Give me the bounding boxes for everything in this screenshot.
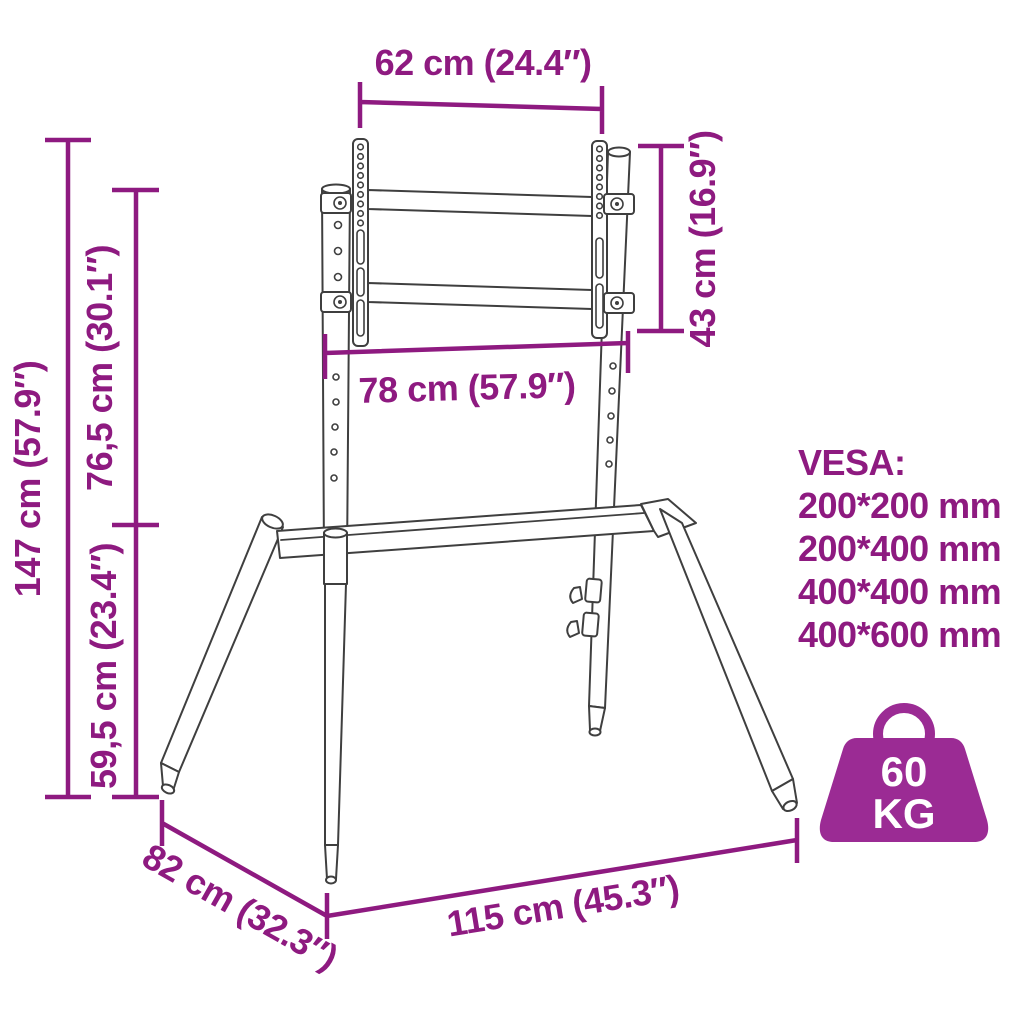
dim-label-width-mid: 78 cm (57.9″) (358, 364, 576, 412)
left-vesa-bar (353, 139, 368, 346)
dim-label-height-lower: 59,5 cm (23.4″) (83, 543, 125, 789)
vesa-sizes-block: VESA: 200*200 mm 200*400 mm 400*400 mm 4… (798, 441, 1001, 656)
dim-label-width-top: 62 cm (24.4″) (375, 42, 592, 84)
vesa-size-item: 200*400 mm (798, 527, 1001, 570)
vesa-size-item: 200*200 mm (798, 484, 1001, 527)
bracket-crossbars (368, 190, 592, 309)
dim-label-bracket-height: 43 cm (16.9″) (682, 131, 724, 348)
dim-line-bracket-height (637, 146, 684, 331)
diagram-canvas: 60 KG 62 cm (24.4″) 43 cm (16.9″) 78 cm … (0, 0, 1024, 1024)
front-left-leg (160, 512, 285, 796)
max-load-value: 60 (881, 748, 928, 795)
max-weight-icon: 60 KG (820, 708, 988, 842)
vesa-title: VESA: (798, 441, 1001, 484)
front-right-leg (641, 499, 798, 813)
dim-label-height-upper: 76,5 cm (30.1″) (79, 245, 121, 491)
dim-label-height-total: 147 cm (57.9″) (7, 361, 49, 597)
vesa-size-item: 400*400 mm (798, 570, 1001, 613)
dim-line-width-top (360, 82, 602, 134)
front-center-leg (324, 529, 347, 884)
max-load-unit: KG (873, 790, 936, 837)
vesa-size-item: 400*600 mm (798, 613, 1001, 656)
